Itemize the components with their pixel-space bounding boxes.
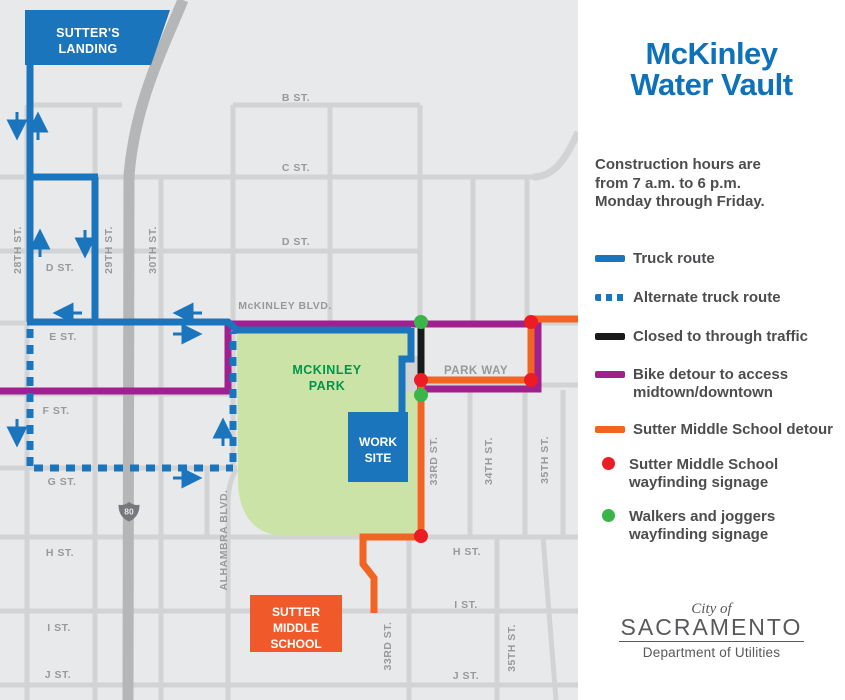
- red-signage-dot-icon: [602, 457, 615, 470]
- bike-detour-line-1: Bike detour to access: [633, 366, 788, 384]
- red-signage-dot-h-st: [414, 529, 428, 543]
- street-label-d-st-east: D ST.: [282, 236, 310, 248]
- street-label-i-st-west: I ST.: [47, 622, 71, 634]
- work-site-label-1: WORK: [359, 435, 397, 449]
- street-label-h-st-west: H ST.: [46, 547, 74, 559]
- red-signage-dot-parkway-35th: [524, 373, 538, 387]
- street-label-34th-st: 34TH ST.: [483, 437, 495, 485]
- legend-item-red-signage: Sutter Middle School wayfinding signage: [595, 456, 778, 491]
- school-detour-swatch: [595, 426, 625, 433]
- park-label-2: PARK: [309, 379, 346, 393]
- logo-department: Department of Utilities: [578, 645, 845, 660]
- school-box-label-1: SUTTER: [272, 605, 320, 619]
- street-label-g-st: G ST.: [48, 476, 77, 488]
- hours-line-2: from 7 a.m. to 6 p.m.: [595, 175, 765, 194]
- street-label-29th-st: 29TH ST.: [103, 226, 115, 274]
- red-signage-dot-mckinley-35th: [524, 315, 538, 329]
- hours-line-1: Construction hours are: [595, 156, 765, 175]
- alternate-truck-route-swatch: [595, 294, 625, 301]
- info-panel: McKinley Water Vault Construction hours …: [578, 0, 845, 700]
- red-signage-dot-parkway-33rd: [414, 373, 428, 387]
- closed-traffic-swatch: [595, 333, 625, 340]
- street-label-b-st: B ST.: [282, 92, 310, 104]
- street-label-i-st-east: I ST.: [454, 599, 478, 611]
- street-label-alhambra-blvd: ALHAMBRA BLVD.: [218, 490, 230, 591]
- street-label-mckinley-blvd: McKINLEY BLVD.: [238, 300, 332, 312]
- legend-label: Sutter Middle School detour: [633, 421, 833, 439]
- construction-hours-note: Construction hours are from 7 a.m. to 6 …: [595, 156, 765, 212]
- red-signage-line-2: wayfinding signage: [629, 474, 778, 492]
- street-label-h-st-east: H ST.: [453, 546, 481, 558]
- sutters-landing-label-1: SUTTER'S: [56, 26, 120, 40]
- legend-label: Walkers and joggers wayfinding signage: [629, 508, 775, 543]
- bike-detour-line-2: midtown/downtown: [633, 384, 788, 402]
- green-signage-line-2: wayfinding signage: [629, 526, 775, 544]
- street-label-d-st-west: D ST.: [46, 262, 74, 274]
- legend-item-school-detour: Sutter Middle School detour: [595, 421, 833, 439]
- street-label-j-st-east: J ST.: [453, 670, 479, 682]
- legend-item-closed-traffic: Closed to through traffic: [595, 328, 808, 346]
- green-signage-dot-parkway: [414, 388, 428, 402]
- logo-sacramento: SACRAMENTO: [619, 616, 805, 642]
- school-box-label-2: MIDDLE: [273, 621, 319, 635]
- green-signage-dot-icon: [602, 509, 615, 522]
- park-label-1: MCKINLEY: [292, 363, 361, 377]
- title-line-2: Water Vault: [578, 69, 845, 100]
- street-label-33rd-st-north: 33RD ST.: [428, 437, 440, 486]
- legend-label: Truck route: [633, 250, 715, 268]
- sutters-landing-label-2: LANDING: [58, 42, 117, 56]
- legend-label: Closed to through traffic: [633, 328, 808, 346]
- detour-map: 80 SUTTER'S LANDING WORK SITE SUTTER MID…: [0, 0, 578, 700]
- green-signage-dot-mckinley: [414, 315, 428, 329]
- legend-item-bike-detour: Bike detour to access midtown/downtown: [595, 366, 788, 401]
- street-label-30th-st: 30TH ST.: [147, 226, 159, 274]
- shield-number: 80: [124, 507, 134, 517]
- green-signage-line-1: Walkers and joggers: [629, 508, 775, 526]
- city-of-sacramento-logo: City of SACRAMENTO Department of Utiliti…: [578, 602, 845, 660]
- street-label-35th-st-south: 35TH ST.: [506, 624, 518, 672]
- mckinley-water-vault-map-page: 80 SUTTER'S LANDING WORK SITE SUTTER MID…: [0, 0, 845, 700]
- hours-line-3: Monday through Friday.: [595, 193, 765, 212]
- legend-item-truck-route: Truck route: [595, 250, 715, 268]
- legend-label: Alternate truck route: [633, 289, 781, 307]
- street-label-c-st: C ST.: [282, 162, 310, 174]
- street-label-f-st: F ST.: [42, 405, 69, 417]
- work-site-box: WORK SITE: [348, 412, 408, 482]
- school-box-label-3: SCHOOL: [270, 637, 321, 651]
- legend-item-alternate-truck-route: Alternate truck route: [595, 289, 781, 307]
- sutters-landing-box: SUTTER'S LANDING: [25, 10, 170, 65]
- street-label-33rd-st-south: 33RD ST.: [382, 622, 394, 671]
- page-title: McKinley Water Vault: [578, 38, 845, 100]
- legend-label: Sutter Middle School wayfinding signage: [629, 456, 778, 491]
- legend-item-green-signage: Walkers and joggers wayfinding signage: [595, 508, 775, 543]
- street-label-park-way: PARK WAY: [444, 365, 508, 377]
- title-line-1: McKinley: [578, 38, 845, 69]
- street-label-35th-st-north: 35TH ST.: [539, 436, 551, 484]
- truck-route-swatch: [595, 255, 625, 262]
- street-label-28th-st: 28TH ST.: [12, 226, 24, 274]
- bike-detour-swatch: [595, 371, 625, 378]
- street-label-e-st: E ST.: [49, 331, 77, 343]
- sutter-middle-school-box: SUTTER MIDDLE SCHOOL: [250, 595, 342, 652]
- legend-label: Bike detour to access midtown/downtown: [633, 366, 788, 401]
- street-label-j-st-west: J ST.: [45, 669, 71, 681]
- red-signage-line-1: Sutter Middle School: [629, 456, 778, 474]
- work-site-label-2: SITE: [365, 451, 392, 465]
